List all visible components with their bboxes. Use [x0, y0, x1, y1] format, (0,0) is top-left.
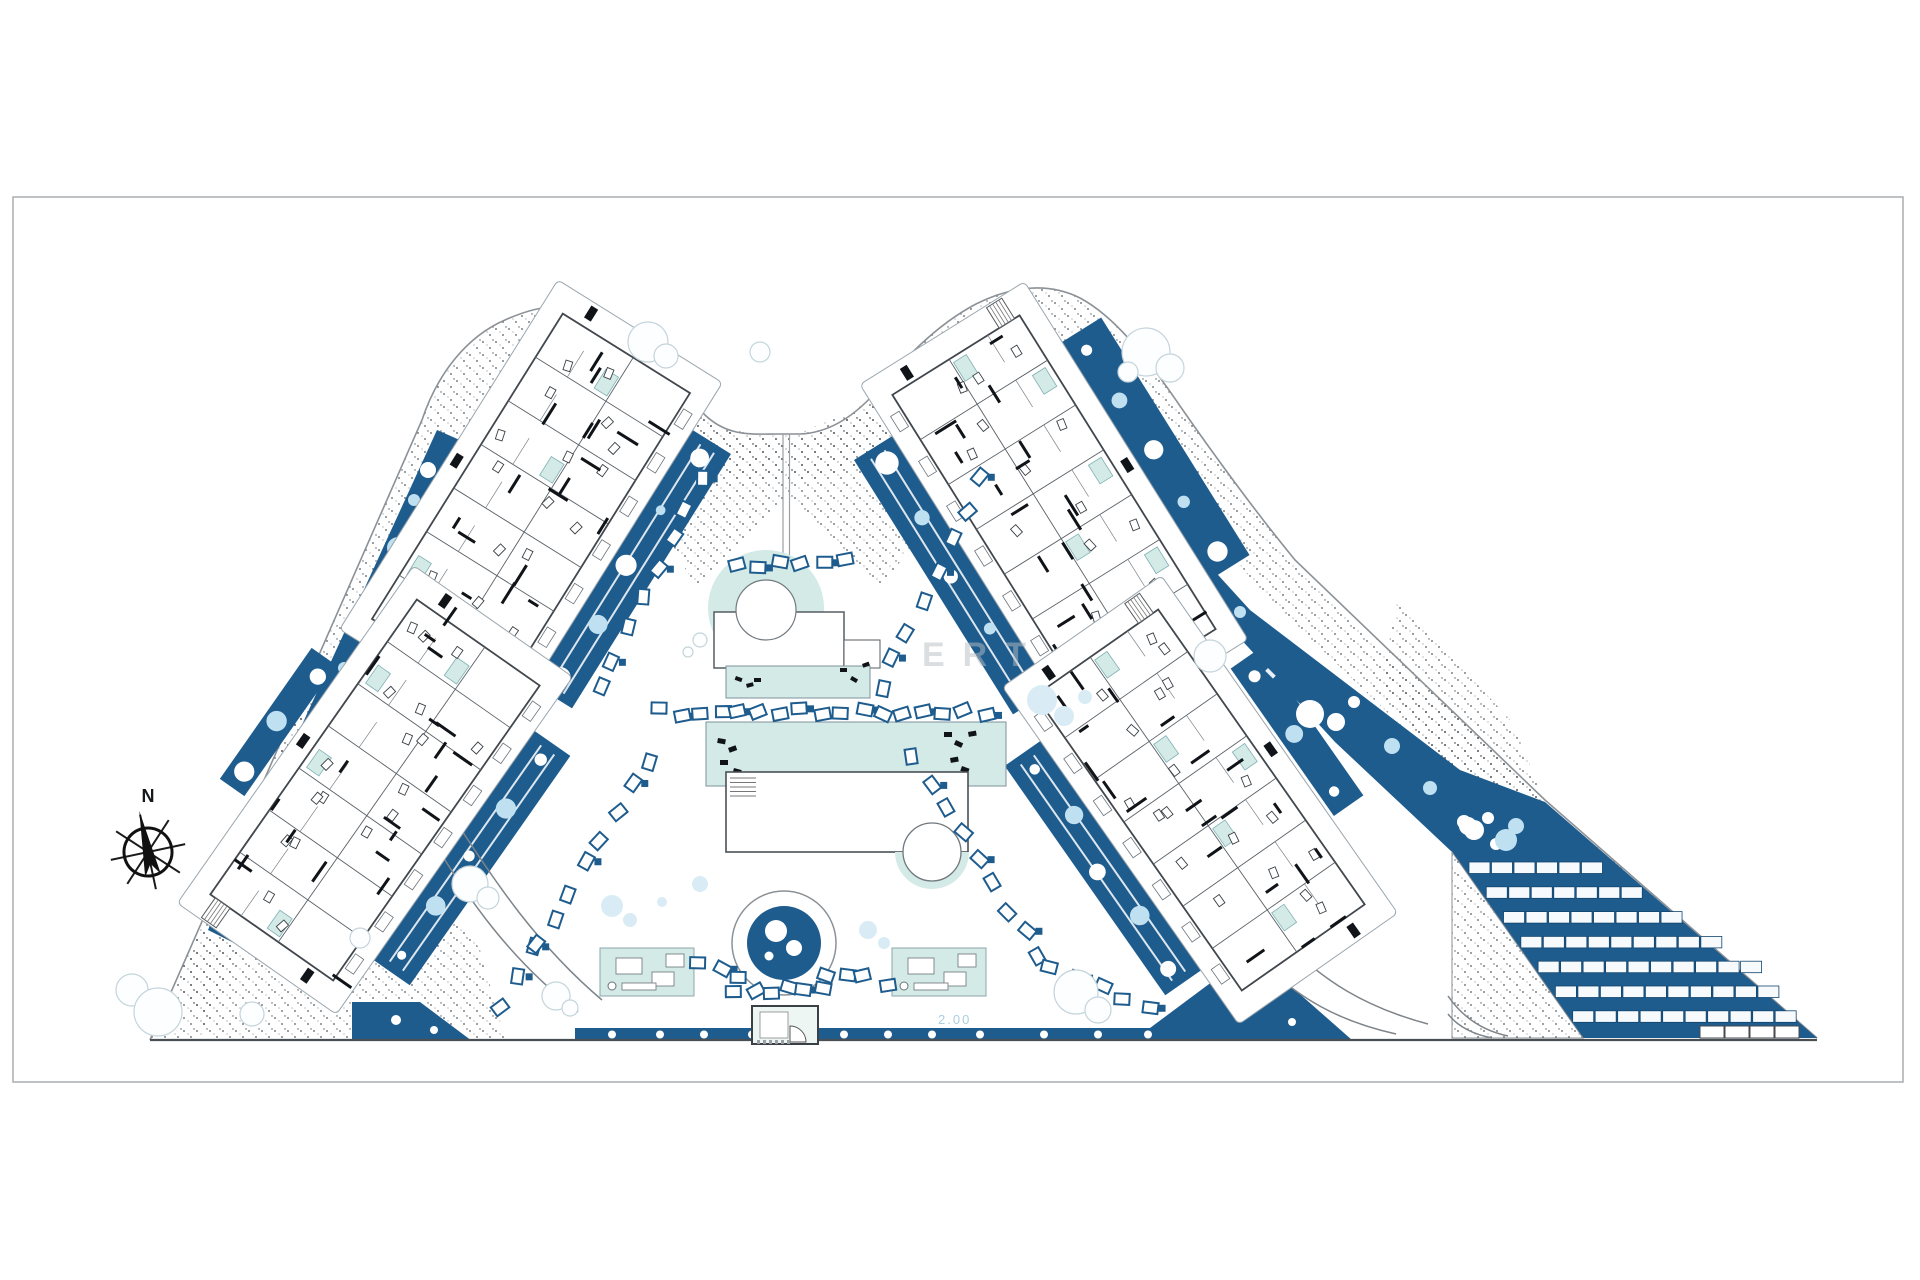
- north-compass: [102, 803, 193, 897]
- parking-stall: [1543, 936, 1564, 948]
- parking-stall: [1611, 936, 1632, 948]
- clubhouse-spa-circle: [903, 823, 961, 881]
- parking-stall: [1663, 1011, 1684, 1023]
- parking-stall: [1775, 1011, 1796, 1023]
- parking-stall: [1661, 912, 1682, 924]
- parking-stall: [1673, 961, 1694, 973]
- parking-stall: [1753, 1011, 1774, 1023]
- parking-stall: [1628, 961, 1649, 973]
- parking-stall: [1775, 1026, 1799, 1038]
- parking-stall: [1730, 1011, 1751, 1023]
- compass-north-label: N: [142, 786, 155, 806]
- parking-stall: [1700, 1026, 1724, 1038]
- parking-stall: [1621, 887, 1642, 899]
- parking-stall: [1583, 961, 1604, 973]
- parking-stall: [1678, 936, 1699, 948]
- parking-stall: [1668, 986, 1689, 998]
- parking-stall: [1656, 936, 1677, 948]
- parking-stall: [1725, 1026, 1749, 1038]
- parking-stall: [1578, 986, 1599, 998]
- parking-stall: [1633, 936, 1654, 948]
- pavilion-right: [892, 948, 986, 996]
- parking-stall: [1566, 936, 1587, 948]
- parking-stall: [1571, 912, 1592, 924]
- parking-stall: [1708, 1011, 1729, 1023]
- depth-marker-label: 2.00: [938, 1012, 971, 1027]
- parking-stall: [1509, 887, 1530, 899]
- parking-stall: [1588, 936, 1609, 948]
- parking-stall: [1690, 986, 1711, 998]
- parking-stall: [1469, 862, 1490, 874]
- parking-stall: [1531, 887, 1552, 899]
- parking-stall: [1573, 1011, 1594, 1023]
- parking-stall: [1758, 986, 1779, 998]
- parking-stall: [1561, 961, 1582, 973]
- parking-stall: [1521, 936, 1542, 948]
- parking-stall: [1491, 862, 1512, 874]
- parking-stall: [1718, 961, 1739, 973]
- parking-stall: [1536, 862, 1557, 874]
- parking-stall: [1576, 887, 1597, 899]
- parking-stall: [1549, 912, 1570, 924]
- parking-stall: [1640, 1011, 1661, 1023]
- parking-stall: [1701, 936, 1722, 948]
- parking-stall: [1514, 862, 1535, 874]
- parking-stall: [1594, 912, 1615, 924]
- parking-stall: [1486, 887, 1507, 899]
- parking-stall: [1750, 1026, 1774, 1038]
- parking-stall: [1651, 961, 1672, 973]
- parking-stall: [1554, 887, 1575, 899]
- parking-stall: [1526, 912, 1547, 924]
- parking-stall: [1616, 912, 1637, 924]
- parking-stall: [1555, 986, 1576, 998]
- entrance-building: [752, 1006, 818, 1044]
- page: N 2.00 ERT: [0, 0, 1920, 1280]
- pavilion-left: [600, 948, 694, 996]
- parking-stall: [1623, 986, 1644, 998]
- site-plan: N 2.00 ERT: [0, 0, 1920, 1280]
- parking-stall: [1639, 912, 1660, 924]
- upper-pool-apron: [726, 666, 870, 698]
- parking-stall: [1645, 986, 1666, 998]
- parking-stall: [1713, 986, 1734, 998]
- parking-stall: [1595, 1011, 1616, 1023]
- parking-stall: [1685, 1011, 1706, 1023]
- parking-stall: [1599, 887, 1620, 899]
- parking-stall: [1696, 961, 1717, 973]
- parking-stall: [1741, 961, 1762, 973]
- watermark-text: ERT: [922, 636, 1044, 674]
- parking-stall: [1735, 986, 1756, 998]
- parking-stall: [1618, 1011, 1639, 1023]
- parking-stall: [1606, 961, 1627, 973]
- parking-stall: [1600, 986, 1621, 998]
- parking-stall: [1581, 862, 1602, 874]
- parking-stall: [1504, 912, 1525, 924]
- parking-stall: [1538, 961, 1559, 973]
- parking-stall: [1559, 862, 1580, 874]
